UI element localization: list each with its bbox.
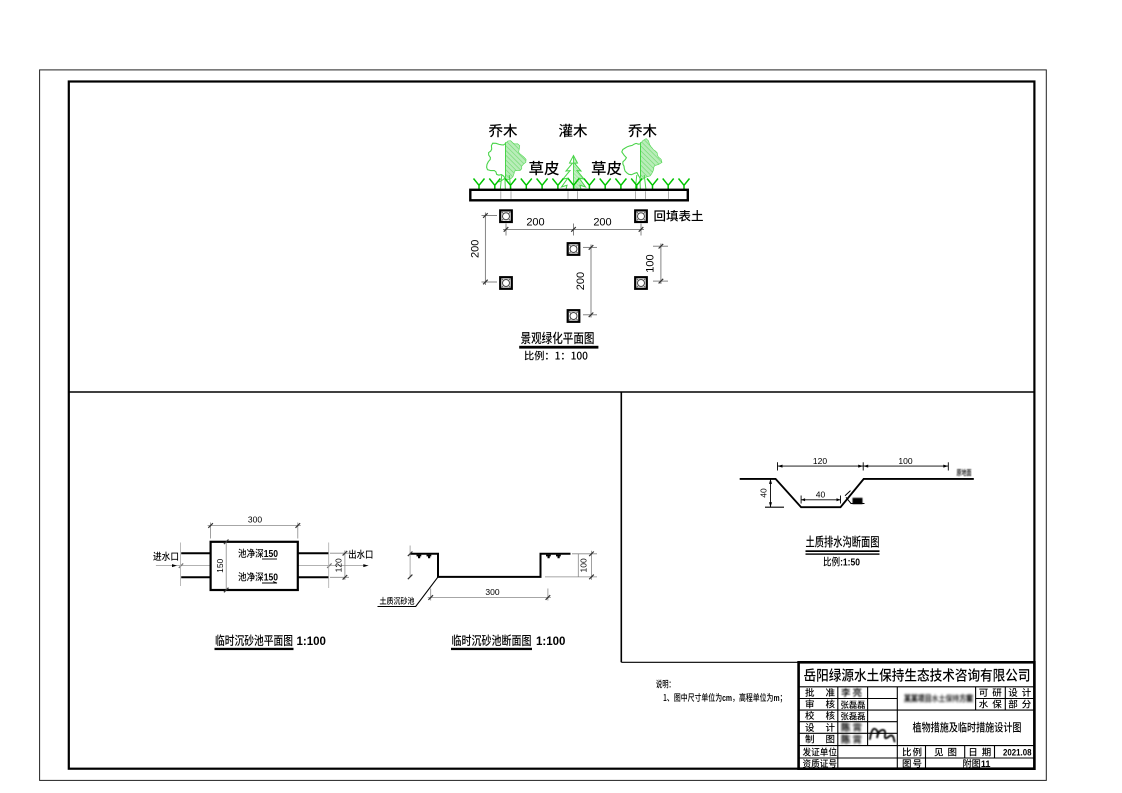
svg-text:说明：: 说明： <box>656 677 675 691</box>
svg-text:临时沉砂池断面图: 临时沉砂池断面图 <box>452 630 532 649</box>
svg-text:200: 200 <box>593 217 611 229</box>
svg-text:40: 40 <box>816 490 826 500</box>
svg-text:2021.08: 2021.08 <box>1003 747 1032 758</box>
svg-text:100: 100 <box>898 456 912 466</box>
svg-text:资质证号: 资质证号 <box>803 756 838 770</box>
svg-text:1:100: 1:100 <box>297 636 326 648</box>
svg-text:比例：1：100: 比例：1：100 <box>524 349 588 364</box>
svg-text:见 图: 见 图 <box>934 744 957 758</box>
svg-text:100: 100 <box>645 254 657 272</box>
svg-text:乔木: 乔木 <box>628 120 657 141</box>
svg-text:120: 120 <box>813 456 827 466</box>
svg-text:图 号: 图 号 <box>902 756 922 770</box>
svg-text:临时沉砂池平面图: 临时沉砂池平面图 <box>215 630 293 649</box>
svg-text:景观绿化平面图: 景观绿化平面图 <box>521 327 595 347</box>
svg-text:回填表土: 回填表土 <box>654 206 704 225</box>
svg-text:40: 40 <box>759 488 769 498</box>
svg-text:附图11: 附图11 <box>963 756 992 770</box>
svg-text:进水口: 进水口 <box>153 548 179 563</box>
svg-text:土质沉砂池: 土质沉砂池 <box>380 595 415 607</box>
svg-text:原地面: 原地面 <box>957 468 972 479</box>
svg-text:陈 霄: 陈 霄 <box>841 732 862 746</box>
svg-text:比例:1:50: 比例:1:50 <box>823 555 860 570</box>
svg-text:土质排水沟断面图: 土质排水沟断面图 <box>806 532 880 551</box>
svg-text:草皮: 草皮 <box>591 157 622 179</box>
svg-text:某某项目水土保持方案: 某某项目水土保持方案 <box>904 693 973 705</box>
svg-text:300: 300 <box>248 515 262 525</box>
svg-text:草皮: 草皮 <box>528 157 559 179</box>
svg-text:200: 200 <box>575 272 587 290</box>
svg-text:120: 120 <box>334 558 344 572</box>
svg-text:150: 150 <box>215 558 225 572</box>
svg-text:水 保: 水 保 <box>979 697 1002 711</box>
svg-text:200: 200 <box>470 240 482 258</box>
svg-text:1、图中尺寸单位为cm，高程单位为m；: 1、图中尺寸单位为cm，高程单位为m； <box>663 690 787 704</box>
svg-text:部 分: 部 分 <box>1008 697 1031 711</box>
svg-text:100: 100 <box>579 558 589 572</box>
svg-text:200: 200 <box>526 217 544 229</box>
svg-text:乔木: 乔木 <box>489 120 518 141</box>
svg-text:1:100: 1:100 <box>536 636 565 648</box>
svg-text:植物措施及临时措施设计图: 植物措施及临时措施设计图 <box>913 720 1022 736</box>
svg-text:灌木: 灌木 <box>559 120 588 141</box>
svg-text:出水口: 出水口 <box>348 546 373 561</box>
svg-text:300: 300 <box>485 587 499 597</box>
svg-text:岳阳绿源水土保持生态技术咨询有限公司: 岳阳绿源水土保持生态技术咨询有限公司 <box>804 665 1031 686</box>
